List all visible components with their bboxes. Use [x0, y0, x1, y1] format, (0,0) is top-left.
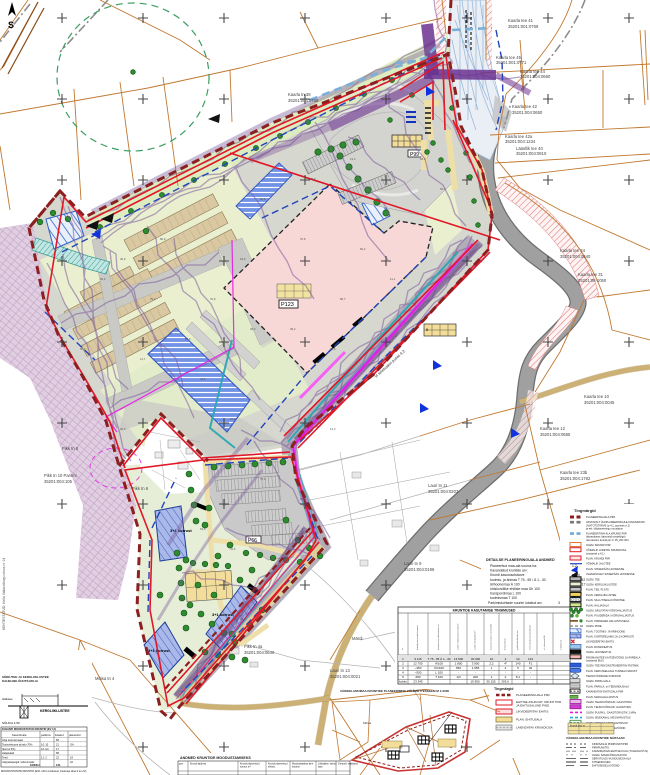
svg-text:35201:004:0640: 35201:004:0640	[560, 254, 591, 259]
svg-text:32: 32	[529, 666, 533, 670]
svg-text:KAVANTI MOODUSTATUD KRUNTID (E: KAVANTI MOODUSTATUD KRUNTID (EV 14)	[2, 727, 56, 731]
svg-text:~350: ~350	[415, 666, 422, 670]
svg-text:Mõisa: Mõisa	[363, 721, 371, 725]
svg-text:Teed: Teed	[2, 756, 8, 760]
svg-text:Tingmärgid: Tingmärgid	[494, 687, 514, 691]
svg-text:-: -	[505, 671, 506, 675]
svg-text:53,0: 53,0	[440, 187, 446, 191]
svg-text:35201:004:0685: 35201:004:0685	[540, 432, 571, 437]
svg-text:Kaarla tn 38: Kaarla tn 38	[288, 92, 311, 97]
svg-text:35201:004:1782: 35201:004:1782	[560, 476, 591, 481]
svg-text:KITSENDUSED: KITSENDUSED	[592, 760, 611, 764]
svg-text:hoonete suurim arv krundil: hoonete suurim arv krundil	[490, 624, 493, 650]
svg-text:SERVITUUDI VAJADUSEGA ALA: SERVITUUDI VAJADUSEGA ALA	[592, 756, 631, 760]
svg-text:Mõisa tn 4: Mõisa tn 4	[95, 676, 115, 681]
svg-text:3+1 korrust: 3+1 korrust	[170, 528, 192, 533]
svg-text:43,8: 43,8	[200, 377, 206, 381]
svg-text:-: -	[458, 671, 459, 675]
svg-text:istutest: istutest	[292, 766, 300, 769]
svg-text:Tingmärgid: Tingmärgid	[574, 508, 596, 513]
svg-text:KOKKU: KOKKU	[30, 763, 40, 767]
svg-text:11,7: 11,7	[140, 357, 146, 361]
svg-text:680: 680	[415, 675, 420, 679]
svg-text:PLAN. KORTERELAMU (3+1 KORRUST: PLAN. KORTERELAMU (3+1 KORRUST)	[586, 635, 634, 639]
svg-text:LIKVIDEERITAV EHITIS: LIKVIDEERITAV EHITIS	[516, 710, 548, 714]
svg-text:123: 123	[528, 657, 533, 661]
svg-text:56,1: 56,1	[80, 347, 86, 351]
svg-text:sihtots.: sihtots.	[268, 766, 276, 769]
svg-text:15,4: 15,4	[230, 417, 236, 421]
svg-text:PLANEERINGUALA PIIR: PLANEERINGUALA PIIR	[586, 515, 615, 519]
svg-text:Lauri tn 11: Lauri tn 11	[428, 483, 448, 488]
svg-text:35201:004:0021: 35201:004:0021	[330, 674, 361, 679]
svg-text:Omandi: eraldatud: Omandi: eraldatud	[338, 763, 358, 766]
svg-text:atav: atav	[318, 766, 323, 769]
svg-text:Kaarla tee 41: Kaarla tee 41	[508, 18, 534, 23]
svg-text:57,9: 57,9	[185, 337, 191, 341]
svg-text:8,1: 8,1	[516, 675, 521, 679]
svg-text:(vastavalt p 4.1): (vastavalt p 4.1)	[586, 551, 605, 555]
svg-text:Pikk tn 6: Pikk tn 6	[132, 486, 149, 491]
svg-text:GA: GA	[70, 742, 74, 746]
svg-text:suurim ehitusaluane pind m: suurim ehitusaluane pind m	[457, 623, 460, 650]
svg-text:3+1 korrust: 3+1 korrust	[212, 612, 234, 617]
svg-text:3 900: 3 900	[472, 662, 480, 666]
svg-text:124: 124	[56, 763, 61, 767]
svg-text:Tootmishoone ja ladu 70%: Tootmishoone ja ladu 70%	[2, 742, 33, 746]
svg-text:KAHELINE ÕHUTILIIKLIA: KAHELINE ÕHUTILIIKLIA	[2, 678, 39, 683]
svg-text:60,9: 60,9	[160, 237, 166, 241]
svg-text:PLAN. PIIRDEAED HALJASTUSEGA: PLAN. PIIRDEAED HALJASTUSEGA	[586, 619, 630, 623]
svg-text:L 100: L 100	[435, 671, 443, 675]
svg-text:Ärija tootmismaad: Ärija tootmismaad	[2, 738, 23, 742]
svg-text:Lauri tn 9: Lauri tn 9	[404, 561, 422, 566]
svg-text:Krundi kasutusotstarve: Krundi kasutusotstarve	[490, 573, 525, 577]
svg-text:1(3: 1(3	[456, 675, 461, 679]
svg-text:84,3: 84,3	[420, 157, 426, 161]
svg-text:KAVANDATAVA EHITISE KUJA (TULE: KAVANDATAVA EHITISE KUJA (TULEOHUTUS)	[592, 749, 648, 753]
svg-text:olemasolev krundi piir nr 35_2: olemasolev krundi piir nr 35_201:004	[586, 538, 629, 542]
svg-text:OLEM. HOONESTUS: OLEM. HOONESTUS	[586, 650, 611, 654]
svg-text:12 700: 12 700	[413, 662, 423, 666]
svg-text:ANDMED KRUNTIDE MOODUSTAMISEKS: ANDMED KRUNTIDE MOODUSTAMISEKS	[180, 756, 251, 760]
svg-text:Pikk tn 10 Parsmi: Pikk tn 10 Parsmi	[44, 473, 77, 478]
svg-text:60,2: 60,2	[360, 247, 366, 251]
svg-text:18,9: 18,9	[240, 257, 246, 261]
svg-text:Kaarla tee 42: Kaarla tee 42	[512, 104, 538, 109]
svg-text:43,6: 43,6	[230, 547, 236, 551]
svg-text:Krundi aadress: Krundi aadress	[190, 763, 207, 766]
svg-text:(korrus 5%): (korrus 5%)	[2, 747, 16, 751]
svg-text:200: 200	[473, 675, 478, 679]
svg-text:ühiskondlike ehitiste maa Üh 1: ühiskondlike ehitiste maa Üh 100	[490, 587, 540, 591]
svg-text:35201:004:0810: 35201:004:0810	[516, 151, 547, 156]
svg-text:13 500: 13 500	[454, 657, 464, 661]
svg-text:LIKVIDEERITAV EHITIS: LIKVIDEERITAV EHITIS	[586, 640, 614, 644]
svg-text:PLAN. TOOTMIS- JA ÄRIHOONE: PLAN. TOOTMIS- JA ÄRIHOONE	[586, 629, 625, 633]
svg-text:1 800: 1 800	[455, 662, 463, 666]
svg-text:OLEM. PIIRE: OLEM. PIIRE	[586, 624, 602, 628]
svg-text:54,8: 54,8	[240, 617, 246, 621]
svg-text:tootmis- ja ärimaa T 75...95 /: tootmis- ja ärimaa T 75...95 / Ä 1...30	[490, 578, 546, 582]
svg-text:303,6: 303,6	[501, 680, 509, 684]
svg-text:30 000: 30 000	[471, 657, 481, 661]
svg-text:KINNISASJA PIIRIPUNKT/PIIR: KINNISASJA PIIRIPUNKT/PIIR	[592, 742, 628, 746]
svg-text:Pikk tn 4a: Pikk tn 4a	[244, 644, 263, 649]
svg-text:P99: P99	[410, 152, 419, 158]
svg-text:tootmismaa T 100: tootmismaa T 100	[490, 596, 517, 600]
svg-text:MOODUSTATATE KRUNTID (EV1 143: MOODUSTATATE KRUNTID (EV1 143 Lmsitusest…	[1, 769, 87, 773]
svg-text:90,4: 90,4	[270, 557, 276, 561]
svg-text:KERGLIIKLUSTEE: KERGLIIKLUSTEE	[40, 709, 70, 713]
svg-text:~500: ~500	[415, 671, 422, 675]
svg-text:Kaarla tee 31: Kaarla tee 31	[578, 272, 604, 277]
svg-text:63,8: 63,8	[200, 527, 206, 531]
svg-text:35201:004:0650: 35201:004:0650	[512, 110, 543, 115]
svg-text:KAVANDATAV EHITUSALA PIIR: KAVANDATAV EHITUSALA PIIR	[586, 690, 623, 694]
svg-text:krundi pos nr: krundi pos nr	[570, 724, 585, 728]
svg-text:EHITUSKEELUVÖÖND: EHITUSKEELUVÖÖND	[592, 764, 620, 768]
svg-text:VÄIKEELAMUMAA KRUNTIDE PLANEER: VÄIKEELAMUMAA KRUNTIDE PLANEERIMISE PÕHI…	[340, 688, 449, 693]
svg-text:35201:004:0196: 35201:004:0196	[404, 567, 435, 572]
svg-text:15 950: 15 950	[470, 680, 480, 684]
svg-text:1 055: 1 055	[472, 666, 480, 670]
svg-text:3: 3	[558, 601, 560, 605]
svg-text:76,6: 76,6	[330, 347, 336, 351]
svg-text:650: 650	[456, 666, 461, 670]
svg-text:1,1 2: 1,1 2	[41, 756, 47, 760]
svg-text:35201:004:1234: 35201:004:1234	[505, 139, 536, 144]
svg-text:Kaarla tee 12: Kaarla tee 12	[540, 426, 566, 431]
svg-text:kasutamise sihtotstarve os: kasutamise sihtotstarve os	[437, 623, 440, 650]
svg-text:KEHTESTATUD: Keila Vallavoliko: KEHTESTATUD: Keila Vallavolikogu otsus n…	[2, 558, 6, 630]
svg-text:2,2: 2,2	[489, 662, 494, 666]
svg-text:30,9: 30,9	[120, 427, 126, 431]
svg-text:35201:004:0203: 35201:004:0203	[428, 489, 459, 494]
svg-text:KRUNTIDE KASUTAMISE TINGIMUSED: KRUNTIDE KASUTAMISE TINGIMUSED	[453, 609, 516, 613]
svg-text:VÄIKEELAMUMAA KRUNTIDE NÄITAJA: VÄIKEELAMUMAA KRUNTIDE NÄITAJAD	[566, 736, 625, 740]
svg-text:-: -	[491, 671, 492, 675]
svg-text:14,2: 14,2	[330, 427, 336, 431]
svg-text:OLEM. PUURKL. GAASITORUSTIK 1: OLEM. PUURKL. GAASITORUSTIK 1 MPa	[586, 710, 637, 714]
svg-text:PLAN. KERGTEELAAGI TUNNEL/VIAD: PLAN. KERGTEELAAGI TUNNEL/VIADUKT	[586, 669, 638, 673]
svg-text:PLAN. KERGLIIKLUSTEE: PLAN. KERGLIIKLUSTEE	[586, 593, 617, 597]
svg-text:PLAN. PARKLA, sn TEENINDUSALA: PLAN. PARKLA, sn TEENINDUSALA	[586, 684, 629, 688]
svg-text:märkused: märkused	[560, 640, 563, 650]
svg-text:LAIENDATAV KRUNDIOSA: LAIENDATAV KRUNDIOSA	[516, 726, 553, 730]
svg-text:70,9: 70,9	[310, 177, 316, 181]
svg-text:OLEM. TEE: OLEM. TEE	[586, 577, 600, 581]
svg-text:66,2: 66,2	[100, 277, 106, 281]
svg-text:40,9: 40,9	[120, 257, 126, 261]
svg-text:OLEMASOLEV SISSEPÄÄS HOONESSE: OLEMASOLEV SISSEPÄÄS HOONESSE	[586, 572, 635, 576]
svg-text:PLAN. HALJASALA: PLAN. HALJASALA	[586, 603, 609, 607]
svg-text:70,9: 70,9	[210, 297, 216, 301]
svg-text:39,2: 39,2	[290, 327, 296, 331]
svg-text:140: 140	[515, 662, 520, 666]
svg-text:veevarustus ja kanalisatsi: veevarustus ja kanalisatsi	[529, 625, 532, 650]
svg-text:35 155: 35 155	[486, 680, 496, 684]
svg-text:39,3: 39,3	[250, 327, 256, 331]
svg-text:-: -	[475, 671, 476, 675]
svg-text:suurim brutopind m²: suurim brutopind m²	[474, 630, 477, 650]
svg-text:Kasa lõmala: Kasa lõmala	[12, 733, 27, 737]
svg-text:-: -	[518, 671, 519, 675]
svg-text:PLANEERINGUALA PIIR: PLANEERINGUALA PIIR	[516, 693, 551, 697]
svg-text:ärihoonemaa Ä 100: ärihoonemaa Ä 100	[490, 582, 520, 586]
svg-text:lubatud: lubatud	[55, 733, 64, 737]
svg-text:13,4: 13,4	[350, 157, 356, 161]
svg-text:parkimis: parkimis	[41, 733, 51, 737]
svg-text:kokku: kokku	[399, 680, 407, 684]
svg-text:krundi planeeritud suurus: krundi planeeritud suurus	[416, 625, 419, 650]
svg-text:parkimiskohtade arv: parkimiskohtade arv	[516, 630, 519, 650]
svg-text:PLAN. KRUNDI PIIR: PLAN. KRUNDI PIIR	[586, 557, 610, 561]
svg-text:OLEM. SIDEKANAL./VESIVARUSTUS: OLEM. SIDEKANAL./VESIVARUSTUS	[586, 716, 631, 720]
svg-text:suurus m²: suurus m²	[240, 766, 251, 769]
svg-text:P66: P66	[248, 538, 257, 544]
svg-text:Märdi: Märdi	[352, 636, 363, 641]
svg-text:Kaarla tee 34: Kaarla tee 34	[560, 248, 586, 253]
svg-text:Kaarla tee 23b: Kaarla tee 23b	[560, 470, 588, 475]
svg-text:35201:001:0769: 35201:001:0769	[508, 24, 539, 29]
svg-text:10: 10	[490, 657, 494, 661]
svg-text:PIIRIPUNKTID: PIIRIPUNKTID	[592, 746, 609, 750]
svg-text:OLEM. KRUNDI PIIR: OLEM. KRUNDI PIIR	[586, 543, 611, 547]
svg-text:JA EHITUSALUNE PIND: JA EHITUSALUNE PIND	[516, 703, 550, 707]
svg-text:35201:004:0045: 35201:004:0045	[584, 400, 615, 405]
svg-text:PLAN. MADALHALJASTUS: PLAN. MADALHALJASTUS	[586, 695, 618, 699]
svg-text:Lauri tn 13: Lauri tn 13	[330, 668, 350, 673]
svg-text:PLAN. BUSSIPEATUS: PLAN. BUSSIPEATUS	[586, 645, 612, 649]
svg-text:nr: nr	[401, 648, 404, 650]
svg-text:transpordimaa L 100: transpordimaa L 100	[490, 592, 521, 596]
svg-text:11,1: 11,1	[390, 277, 396, 281]
svg-text:70,8: 70,8	[300, 237, 306, 241]
svg-text:Üh/100: Üh/100	[434, 666, 444, 670]
svg-text:PLAN. SISSEPÄÄS HOONESSE: PLAN. SISSEPÄÄS HOONESSE	[586, 567, 624, 571]
svg-text:35201:08-1050: 35201:08-1050	[578, 278, 607, 283]
svg-text:9 115: 9 115	[414, 657, 422, 661]
svg-text:planeeritd: planeeritd	[69, 733, 81, 737]
svg-text:3+1 korrust: 3+1 korrust	[148, 648, 170, 653]
svg-text:Haljasalad: Haljasalad	[2, 751, 15, 755]
svg-text:DETAILSE PLANEERINGUALA ANDMED: DETAILSE PLANEERINGUALA ANDMED	[486, 558, 555, 562]
svg-text:ja eel. üldplaneeringu muudatu: ja eel. üldplaneeringu muudatus	[585, 526, 623, 530]
svg-text:OLEM. KERGLIIKLUSTEE: OLEM. KERGLIIKLUSTEE	[586, 583, 617, 587]
svg-text:OLEM. TEE REKONSTRUEERITAV RIS: OLEM. TEE REKONSTRUEERITAV RISTMIK	[586, 664, 639, 668]
svg-text:1/1 kor: 1/1 kor	[41, 747, 49, 751]
svg-text:-: -	[530, 675, 531, 679]
svg-text:Parkimiskohtade suurim lubatud: Parkimiskohtade suurim lubatud arv	[488, 601, 542, 605]
svg-text:T 75...95 Ä 1...30: T 75...95 Ä 1...30	[428, 657, 451, 661]
svg-text:korruselisus: korruselisus	[504, 637, 507, 650]
svg-text:35201:001:0771: 35201:001:0771	[496, 60, 527, 65]
svg-text:PLAN. EHITUSALA: PLAN. EHITUSALA	[516, 718, 542, 722]
svg-text:59,9: 59,9	[180, 597, 186, 601]
svg-text:(vastavalt EhS): (vastavalt EhS)	[586, 658, 604, 662]
svg-text:Ä/100: Ä/100	[435, 662, 443, 666]
svg-text:79,2: 79,2	[150, 297, 156, 301]
svg-text:Kavandatud kruntide arv:: Kavandatud kruntide arv:	[490, 569, 528, 573]
svg-text:S: S	[8, 20, 14, 30]
svg-text:73,3: 73,3	[260, 477, 266, 481]
svg-text:F1: F1	[529, 662, 533, 666]
svg-text:PLAN. TEE, PLATS: PLAN. TEE, PLATS	[586, 588, 609, 592]
svg-text:P123: P123	[281, 302, 294, 308]
svg-text:-: -	[530, 671, 531, 675]
svg-text:OLEM. PARKLA/ALA: OLEM. PARKLA/ALA	[586, 679, 611, 683]
svg-text:35201:004:0640: 35201:004:0640	[244, 650, 275, 655]
svg-text:Pikk tn 8: Pikk tn 8	[62, 446, 79, 451]
svg-text:35201:004:0660: 35201:004:0660	[520, 74, 551, 79]
svg-text:35201:004:105: 35201:004:105	[44, 479, 73, 484]
svg-text:Kaarla tee 10: Kaarla tee 10	[584, 394, 610, 399]
svg-text:el. võimsus kW: el. võimsus kW	[543, 634, 546, 650]
svg-text:T 100: T 100	[435, 675, 443, 679]
svg-text:Planeeritud maa-ala suurus ha:: Planeeritud maa-ala suurus ha:	[490, 564, 537, 568]
svg-text:SÕLM A 1:50: SÕLM A 1:50	[2, 720, 20, 725]
svg-text:sõidutee: sõidutee	[2, 697, 13, 701]
svg-text:23 345: 23 345	[413, 680, 423, 684]
svg-text:59,6: 59,6	[260, 197, 266, 201]
svg-text:1/1 10: 1/1 10	[41, 742, 49, 746]
svg-text:80,7: 80,7	[340, 297, 346, 301]
